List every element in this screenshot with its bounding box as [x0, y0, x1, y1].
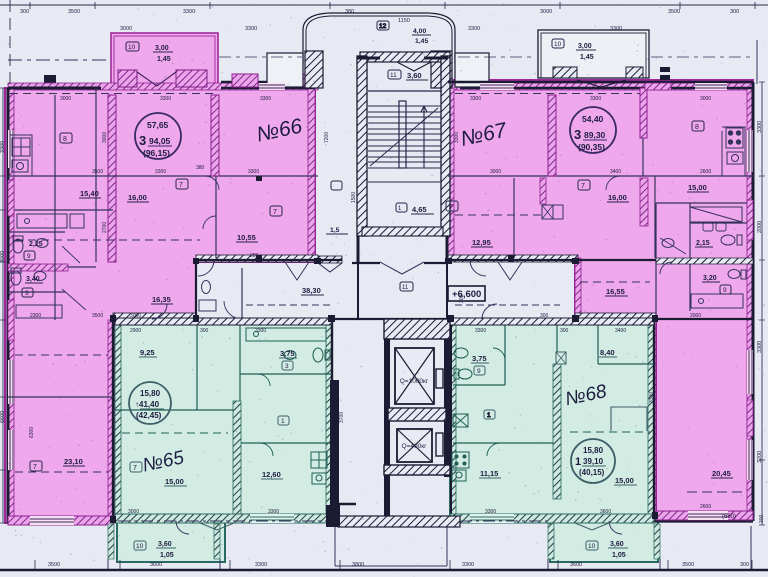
svg-text:3300: 3300 [610, 26, 622, 32]
svg-text:Q=1000кг: Q=1000кг [400, 378, 429, 385]
svg-text:3400: 3400 [610, 169, 621, 175]
svg-text:3300: 3300 [260, 96, 271, 102]
svg-text:6300: 6300 [29, 427, 35, 438]
svg-text:7: 7 [449, 204, 453, 211]
svg-text:3500: 3500 [668, 9, 680, 15]
svg-text:1: 1 [575, 456, 581, 468]
svg-text:3600: 3600 [570, 562, 582, 568]
svg-text:1,45: 1,45 [157, 56, 171, 63]
svg-text:2300: 2300 [30, 313, 41, 319]
svg-text:16,35: 16,35 [152, 295, 171, 304]
svg-text:3000: 3000 [120, 26, 132, 32]
svg-text:89,30: 89,30 [584, 130, 606, 140]
svg-text:2600: 2600 [700, 504, 711, 510]
svg-text:2000: 2000 [757, 221, 763, 233]
svg-text:2,25: 2,25 [29, 241, 43, 248]
svg-text:15,00: 15,00 [615, 476, 634, 485]
svg-text:3,60: 3,60 [610, 541, 624, 548]
svg-text:380: 380 [345, 9, 354, 15]
svg-text:3500: 3500 [48, 562, 60, 568]
svg-text:3300: 3300 [245, 26, 257, 32]
svg-text:9: 9 [27, 253, 31, 260]
svg-text:94,05: 94,05 [149, 136, 171, 146]
svg-text:3300: 3300 [757, 121, 763, 133]
svg-text:9: 9 [723, 287, 727, 294]
svg-text:+6,600: +6,600 [452, 289, 481, 300]
svg-text:300: 300 [459, 294, 465, 303]
svg-text:11,15: 11,15 [480, 469, 498, 478]
svg-text:3500: 3500 [92, 169, 103, 175]
svg-text:10,55: 10,55 [237, 233, 256, 242]
svg-text:300: 300 [740, 562, 749, 568]
svg-text:7: 7 [273, 209, 277, 216]
svg-text:1,45: 1,45 [580, 54, 594, 61]
svg-text:3500: 3500 [68, 9, 80, 15]
svg-text:11: 11 [390, 72, 397, 79]
svg-text:11: 11 [402, 285, 409, 291]
svg-text:3300: 3300 [255, 562, 267, 568]
svg-text:300: 300 [759, 514, 765, 523]
svg-text:8,40: 8,40 [600, 348, 615, 357]
svg-text:7: 7 [581, 183, 585, 190]
svg-text:3000: 3000 [60, 96, 71, 102]
svg-text:300: 300 [20, 9, 29, 15]
svg-text:3,20: 3,20 [703, 275, 717, 282]
svg-text:3300: 3300 [475, 328, 486, 334]
svg-text:9,25: 9,25 [140, 348, 155, 357]
svg-text:3300: 3300 [470, 96, 481, 102]
svg-text:10: 10 [128, 44, 136, 51]
svg-text:7: 7 [179, 182, 183, 189]
svg-text:(40,15): (40,15) [579, 468, 605, 477]
svg-text:1500: 1500 [351, 192, 357, 203]
svg-text:1,5: 1,5 [330, 227, 340, 234]
svg-text:54,40: 54,40 [582, 114, 604, 124]
svg-text:3,00: 3,00 [155, 45, 169, 52]
svg-text:3300: 3300 [462, 562, 474, 568]
svg-text:15,80: 15,80 [583, 446, 604, 455]
svg-text:300: 300 [200, 328, 209, 334]
svg-text:3,60: 3,60 [407, 71, 422, 80]
svg-text:3300: 3300 [468, 26, 480, 32]
svg-text:23,10: 23,10 [64, 457, 83, 466]
svg-text:1,05: 1,05 [160, 552, 174, 559]
svg-text:3: 3 [139, 133, 146, 148]
svg-text:15,00: 15,00 [688, 183, 707, 192]
svg-text:Q=400кг: Q=400кг [402, 443, 428, 450]
svg-text:12: 12 [379, 23, 387, 30]
svg-text:3,75: 3,75 [472, 354, 487, 363]
svg-text:300: 300 [540, 313, 549, 319]
svg-text:3300: 3300 [485, 509, 496, 515]
svg-text:300: 300 [730, 9, 739, 15]
svg-text:3300: 3300 [454, 132, 460, 143]
svg-text:16,00: 16,00 [608, 193, 627, 202]
svg-text:3: 3 [285, 363, 289, 370]
svg-text:300: 300 [560, 328, 569, 334]
svg-text:2,15: 2,15 [696, 240, 710, 247]
svg-text:3500: 3500 [682, 562, 694, 568]
svg-text:3000: 3000 [128, 509, 139, 515]
svg-text:8: 8 [695, 124, 699, 131]
svg-text:3500: 3500 [92, 313, 103, 319]
svg-text:1: 1 [281, 418, 285, 425]
svg-text:12,60: 12,60 [262, 470, 281, 479]
svg-text:3000: 3000 [490, 169, 501, 175]
svg-text:2600: 2600 [700, 169, 711, 175]
svg-text:3300: 3300 [160, 96, 171, 102]
svg-text:(42,45): (42,45) [136, 411, 162, 420]
svg-text:7: 7 [133, 465, 137, 472]
svg-text:2900: 2900 [130, 328, 141, 334]
svg-text:7: 7 [33, 464, 37, 471]
svg-text:2700: 2700 [102, 222, 108, 233]
svg-text:2000: 2000 [690, 313, 701, 319]
svg-text:(90,35): (90,35) [578, 142, 605, 152]
svg-text:3300: 3300 [590, 96, 601, 102]
svg-text:9: 9 [25, 290, 29, 297]
svg-text:(96,15): (96,15) [143, 148, 170, 158]
svg-text:15,80: 15,80 [140, 389, 161, 398]
svg-text:3,60: 3,60 [158, 541, 172, 548]
svg-text:39,10: 39,10 [583, 457, 604, 466]
svg-text:3,40: 3,40 [26, 276, 40, 283]
svg-text:4,65: 4,65 [412, 205, 427, 214]
svg-text:3000: 3000 [700, 96, 711, 102]
svg-text:38,30: 38,30 [302, 286, 321, 295]
svg-text:3: 3 [574, 127, 581, 142]
svg-text:3000: 3000 [130, 313, 141, 319]
svg-text:7200: 7200 [324, 132, 330, 143]
svg-text:3,75: 3,75 [280, 349, 295, 358]
svg-text:3300: 3300 [255, 328, 266, 334]
svg-text:1: 1 [487, 412, 491, 419]
svg-text:12,95: 12,95 [472, 238, 491, 247]
svg-text:1,05: 1,05 [612, 552, 626, 559]
svg-text:3000: 3000 [540, 9, 552, 15]
svg-text:↑41,40: ↑41,40 [135, 400, 160, 409]
svg-text:380: 380 [196, 165, 205, 171]
svg-text:3300: 3300 [183, 9, 195, 15]
svg-text:3600: 3600 [150, 562, 162, 568]
svg-text:16,00: 16,00 [128, 193, 147, 202]
svg-text:3300: 3300 [155, 169, 166, 175]
svg-text:3400: 3400 [615, 328, 626, 334]
svg-text:1150: 1150 [398, 18, 410, 24]
svg-text:15,00: 15,00 [165, 477, 184, 486]
svg-text:10: 10 [136, 543, 144, 550]
svg-text:3600: 3600 [600, 509, 611, 515]
svg-text:3300: 3300 [268, 509, 279, 515]
svg-text:3800: 3800 [352, 562, 364, 568]
svg-text:16,55: 16,55 [606, 287, 625, 296]
svg-text:20,45: 20,45 [712, 469, 731, 478]
svg-text:3200: 3200 [757, 451, 763, 463]
svg-text:3700: 3700 [339, 412, 345, 423]
svg-text:4,00: 4,00 [413, 28, 426, 35]
svg-text:(660): (660) [722, 514, 736, 520]
svg-text:3,00: 3,00 [578, 43, 592, 50]
svg-text:15,40: 15,40 [80, 189, 99, 198]
svg-text:3300: 3300 [248, 169, 259, 175]
svg-text:57,65: 57,65 [147, 120, 169, 130]
svg-text:9: 9 [477, 368, 481, 375]
svg-text:1,45: 1,45 [415, 38, 428, 45]
svg-text:8: 8 [63, 136, 67, 143]
svg-text:10: 10 [588, 543, 596, 550]
svg-text:3300: 3300 [649, 392, 655, 403]
